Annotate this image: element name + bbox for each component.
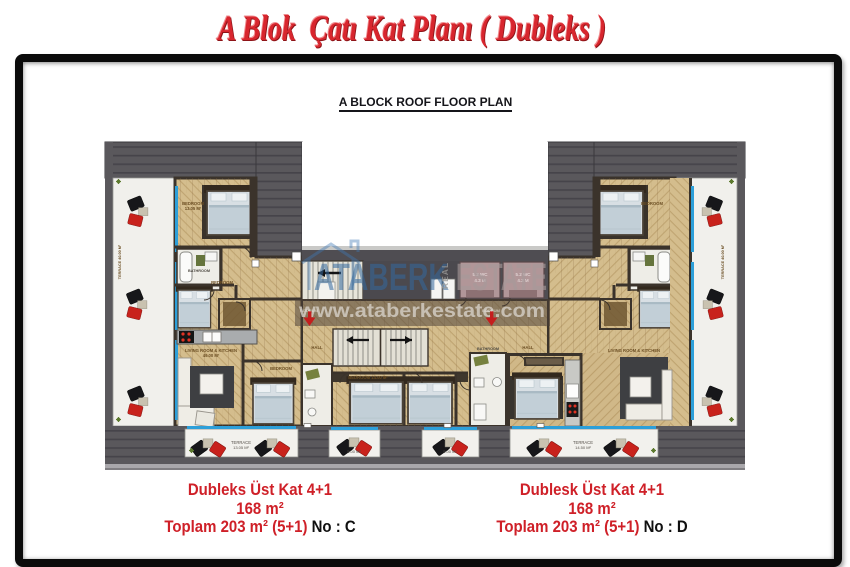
svg-text:BATHROOM: BATHROOM (188, 269, 210, 273)
svg-text:13.05 M²: 13.05 M² (185, 206, 202, 211)
svg-text:5.00 M²: 5.00 M² (347, 449, 361, 454)
svg-text:BEDROOM 14.00 M²: BEDROOM 14.00 M² (348, 375, 388, 380)
svg-text:14.50 M²: 14.50 M² (575, 445, 591, 450)
svg-text:BEDROOM: BEDROOM (270, 366, 292, 371)
svg-text:13.05 M²: 13.05 M² (233, 445, 249, 450)
svg-text:BODRUM: BODRUM (300, 308, 318, 313)
svg-text:REAL: REAL (440, 262, 450, 289)
svg-text:LIVING ROOM & KITCHEN: LIVING ROOM & KITCHEN (608, 348, 660, 353)
svg-text:TERRACE 40.00 M²: TERRACE 40.00 M² (721, 244, 725, 279)
svg-text:HALL: HALL (311, 345, 323, 350)
svg-text:BEDROOM: BEDROOM (641, 201, 663, 206)
svg-text:BATHROOM: BATHROOM (477, 347, 499, 351)
svg-text:ESTATE: ESTATE (456, 257, 547, 299)
svg-text:HALL: HALL (522, 345, 534, 350)
svg-text:ATABERK: ATABERK (314, 257, 449, 299)
svg-text:BEDROOM: BEDROOM (211, 280, 233, 285)
svg-text:www.ataberkestate.com: www.ataberkestate.com (298, 300, 545, 322)
svg-text:BODRUM: BODRUM (482, 308, 500, 313)
svg-text:49.00 M²: 49.00 M² (203, 353, 220, 358)
svg-text:5.00 M²: 5.00 M² (443, 449, 457, 454)
svg-text:TERRACE 40.00 M²: TERRACE 40.00 M² (118, 244, 122, 279)
